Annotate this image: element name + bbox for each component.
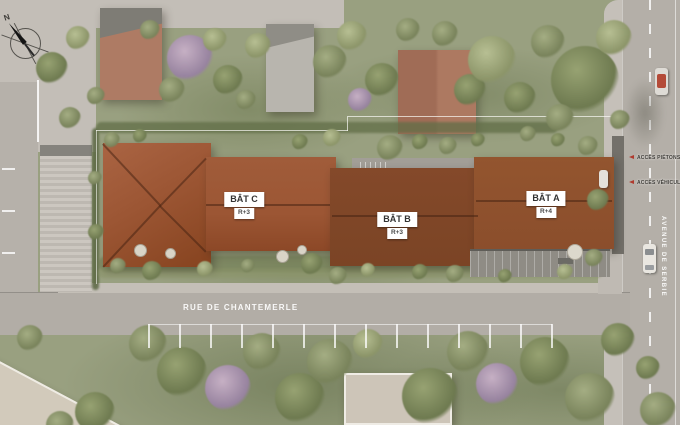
street-name-rue: RUE DE CHANTEMERLE <box>183 303 298 312</box>
building-label-bat-c: BÂT C R+3 <box>224 192 264 219</box>
building-name: BÂT B <box>377 212 417 227</box>
parking-tick <box>179 324 181 348</box>
parking-tick <box>489 324 491 348</box>
building-name: BÂT A <box>526 191 565 206</box>
parking-tick <box>427 324 429 348</box>
parking-tick <box>303 324 305 348</box>
road-markings-layer <box>0 0 680 425</box>
parking-tick <box>210 324 212 348</box>
car-white <box>643 244 656 273</box>
road-dash <box>2 210 15 212</box>
site-plan-canvas: N BÂT C R+3 BÂT B R+3 BÂT A R+4 RUE DE C… <box>0 0 680 425</box>
car-rear-window <box>645 265 654 270</box>
road-dash <box>2 252 15 254</box>
parking-tick <box>458 324 460 348</box>
building-floors: R+3 <box>387 228 407 239</box>
parking-tick <box>365 324 367 348</box>
parking-tick <box>334 324 336 348</box>
parking-tick <box>396 324 398 348</box>
parking-tick <box>520 324 522 348</box>
car-red <box>655 68 668 95</box>
access-pietons-arrow-icon <box>629 155 634 159</box>
access-vehicules-arrow-icon <box>629 180 634 184</box>
compass-north-label: N <box>3 12 11 22</box>
parking-tick <box>551 324 553 348</box>
street-name-avenue: AVENUE DE SERBIE <box>660 216 666 297</box>
road-dash <box>2 168 15 170</box>
access-pietons-label: ACCÈS PIÉTONS <box>637 155 680 161</box>
access-vehicules-label: ACCÈS VÉHICULES <box>637 180 680 186</box>
parking-tick <box>241 324 243 348</box>
building-label-bat-a: BÂT A R+4 <box>526 191 565 218</box>
parking-tick <box>272 324 274 348</box>
building-floors: R+3 <box>234 208 254 219</box>
car-parked <box>599 170 608 188</box>
building-name: BÂT C <box>224 192 264 207</box>
car-roof <box>657 74 666 88</box>
car-windshield <box>645 249 654 255</box>
building-floors: R+4 <box>536 207 556 218</box>
parking-tick <box>148 324 150 348</box>
building-label-bat-b: BÂT B R+3 <box>377 212 417 239</box>
compass: N <box>2 8 60 66</box>
parking-bay-line <box>148 324 552 325</box>
